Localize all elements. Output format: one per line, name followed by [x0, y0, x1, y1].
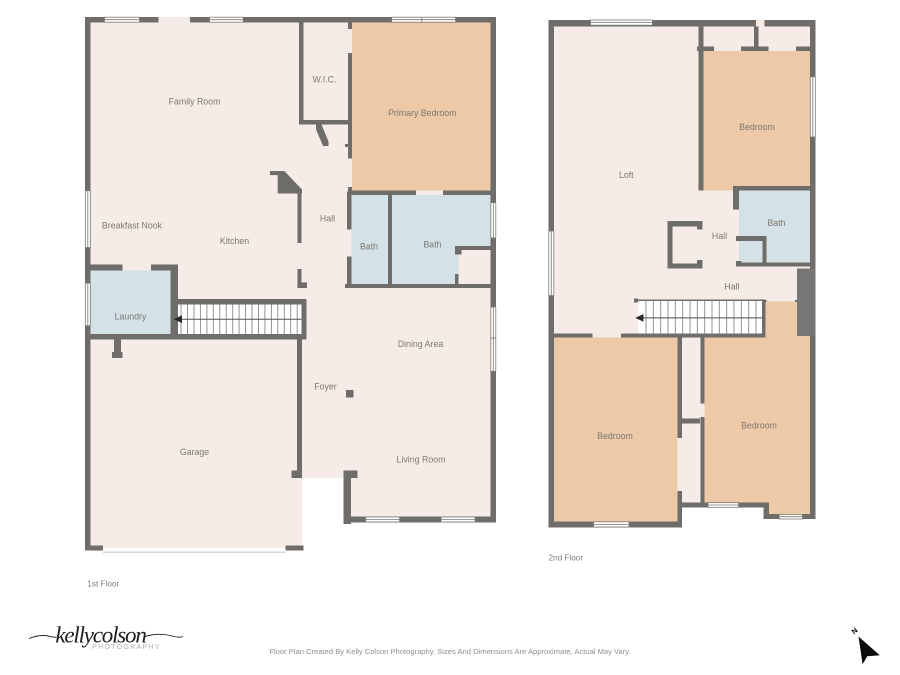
svg-text:Bath: Bath	[423, 239, 441, 249]
svg-text:Hall: Hall	[320, 213, 335, 223]
svg-text:Hall: Hall	[724, 282, 739, 292]
svg-text:Family Room: Family Room	[169, 97, 221, 107]
svg-text:Foyer: Foyer	[314, 382, 337, 392]
svg-text:2nd Floor: 2nd Floor	[549, 554, 584, 563]
svg-text:1st Floor: 1st Floor	[87, 580, 119, 589]
svg-text:Garage: Garage	[180, 447, 209, 457]
svg-text:Breakfast Nook: Breakfast Nook	[102, 220, 163, 230]
svg-text:Bath: Bath	[767, 218, 785, 228]
svg-text:Kitchen: Kitchen	[220, 236, 249, 246]
svg-text:Laundry: Laundry	[115, 312, 147, 322]
svg-text:Bedroom: Bedroom	[739, 122, 775, 132]
svg-text:Floor Plan Created By Kelly Co: Floor Plan Created By Kelly Colson Photo…	[269, 647, 630, 656]
svg-text:Bath: Bath	[360, 242, 378, 252]
svg-text:Primary Bedroom: Primary Bedroom	[388, 108, 456, 118]
svg-text:Hall: Hall	[712, 231, 727, 241]
svg-text:Loft: Loft	[619, 170, 634, 180]
svg-text:PHOTOGRAPHY: PHOTOGRAPHY	[92, 644, 161, 651]
svg-text:Bedroom: Bedroom	[597, 431, 633, 441]
svg-text:W.I.C.: W.I.C.	[313, 75, 337, 85]
svg-text:Living Room: Living Room	[397, 454, 446, 464]
svg-text:Dining Area: Dining Area	[398, 339, 444, 349]
svg-text:Bedroom: Bedroom	[741, 421, 777, 431]
